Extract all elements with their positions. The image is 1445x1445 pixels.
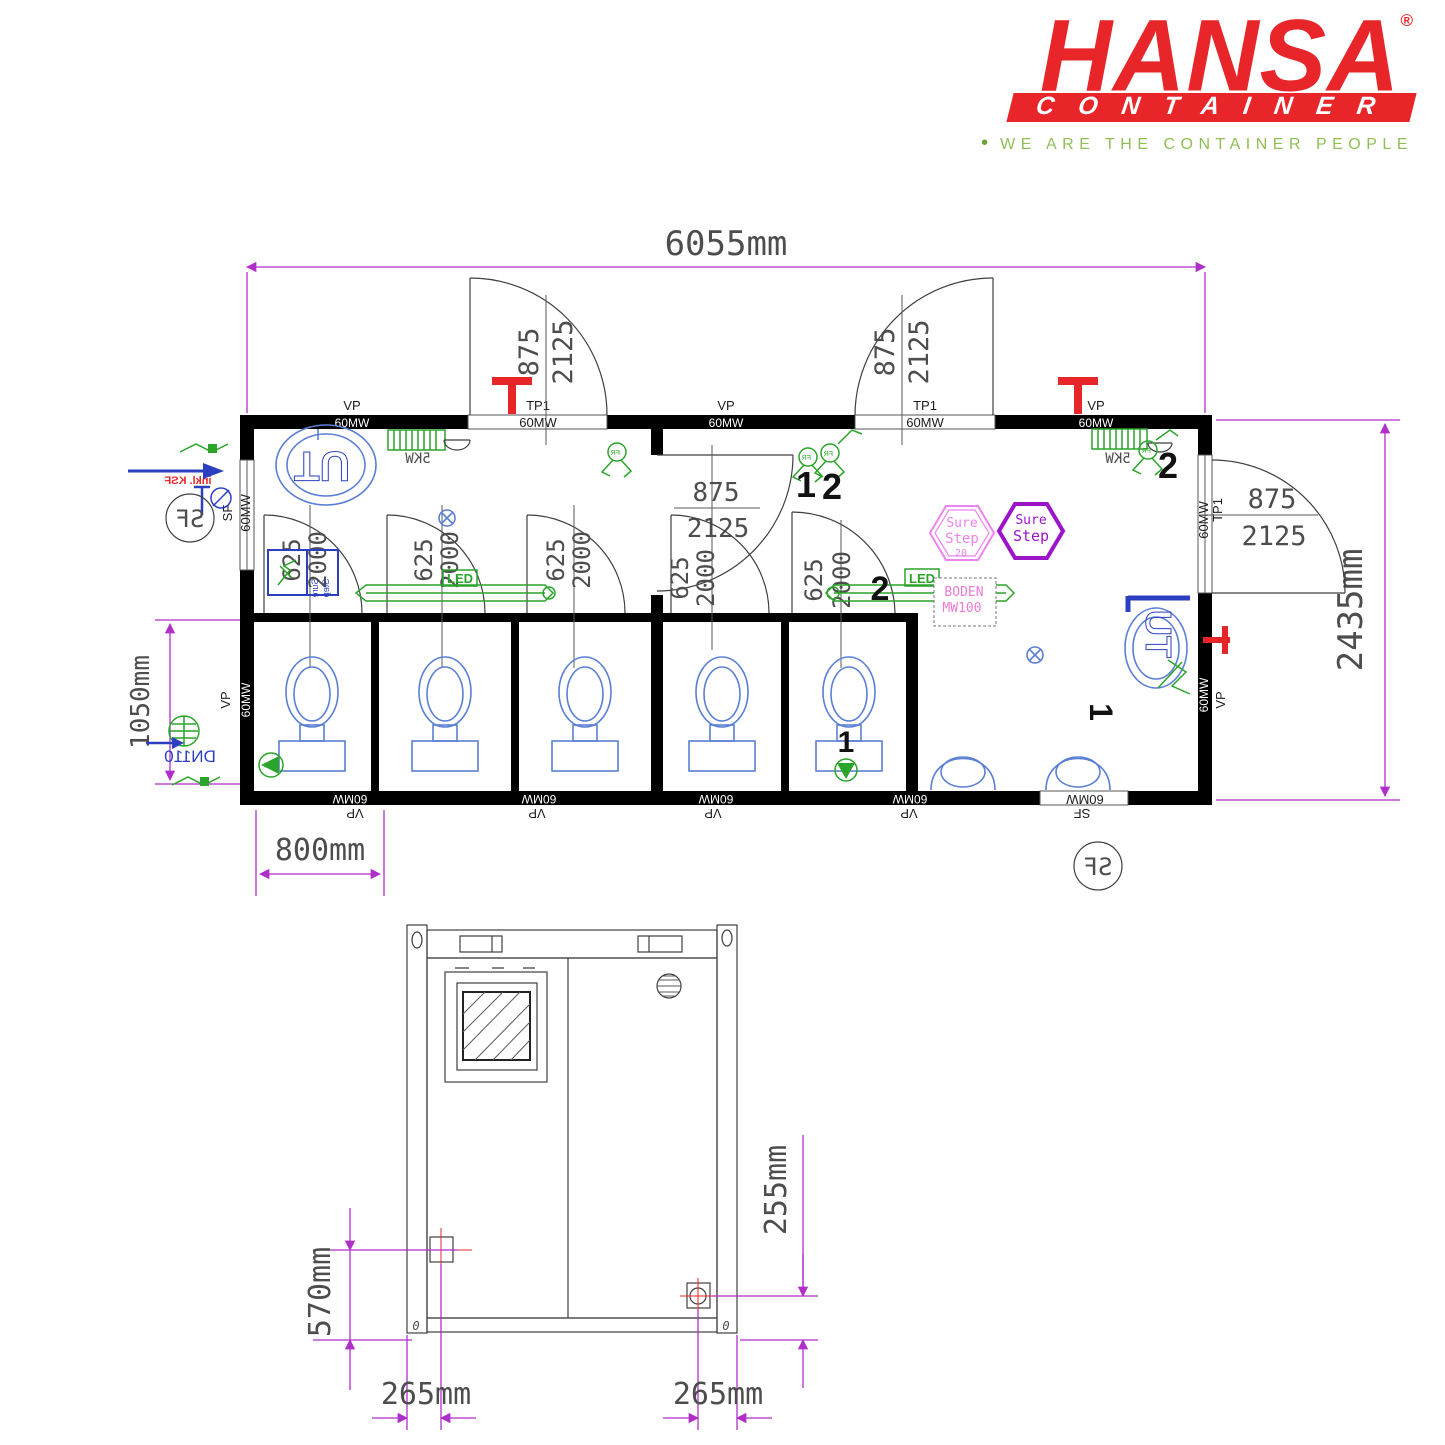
led-label: LED	[447, 571, 473, 586]
dim-265-left: 265mm	[381, 1377, 471, 1412]
wall-label-60mw: 60MW	[1065, 792, 1103, 807]
shower-label-sure: Sure	[310, 578, 320, 597]
mw100-label: MW100	[942, 601, 981, 616]
stall-door-width: 625	[278, 538, 306, 581]
wall-label-60mw: 60MW	[1197, 677, 1211, 712]
boden-mw100-block: BODEN MW100	[934, 578, 996, 626]
wall-label-60mw: 60MW	[519, 415, 557, 430]
technical-drawing-page: HANSA® CONTAINER • WE ARE THE CONTAINER …	[0, 0, 1445, 1445]
casting-hole: 0	[722, 1319, 729, 1333]
door-width: 875	[514, 328, 545, 377]
surestep-step: Step	[1013, 527, 1049, 545]
dim-height: 2435mm	[1331, 549, 1371, 672]
floor-drain: DN110	[146, 716, 216, 766]
sf-symbol: SF	[1074, 842, 1122, 890]
radiator-label: 5KW	[405, 451, 431, 467]
radiator: 5KW	[388, 430, 445, 467]
floor-plan: 6055mm 2435mm 1050mm 800mm	[126, 224, 1400, 896]
surestep-items: Sure Step 20 Sure Step BODEN MW100	[930, 504, 1063, 626]
pos-2: 2	[1158, 445, 1178, 486]
washbasin-label: UT	[1138, 610, 1179, 658]
wall-label-60mw: 60MW	[239, 682, 253, 717]
sprinkler-icon	[1027, 647, 1043, 663]
surestep-step: Step	[945, 531, 979, 547]
dim-stall: 800mm	[275, 833, 365, 868]
shower-label-step: Step	[321, 579, 331, 598]
wall-label-60mw: 60MW	[1196, 500, 1211, 538]
washbasin-left: UT	[276, 425, 376, 505]
wall-label-60mw: 60MW	[906, 415, 944, 430]
wall-label-vp: VP	[900, 806, 917, 821]
door-width: 875	[693, 478, 740, 508]
wall-label-60mw: 60MW	[892, 792, 927, 806]
wall-label-60mw: 60MW	[335, 416, 370, 430]
sf-symbol-label: SF	[176, 505, 205, 533]
surestep-hexagon: Sure Step	[999, 504, 1063, 558]
pos-2: 2	[871, 570, 890, 608]
wall-label-60mw: 60MW	[698, 792, 733, 806]
wall-label-vp: VP	[346, 806, 363, 821]
door-height: 2125	[548, 319, 579, 384]
wall-label-vp: VP	[343, 398, 360, 413]
stall-doors: 625 2000 625 2000 625 2000 625 2000 625 …	[264, 505, 895, 668]
dim-265-right: 265mm	[673, 1377, 763, 1412]
wall-label-tp1: TP1	[1210, 498, 1225, 522]
stall-door-width: 625	[800, 558, 828, 601]
dim-255: 255mm	[759, 1145, 794, 1235]
pos-1: 1	[1083, 703, 1119, 721]
wall-label-vp: VP	[704, 806, 721, 821]
pos-1: 1	[838, 726, 855, 759]
stall-door-width: 625	[666, 556, 694, 599]
wall-label-60mw: 60MW	[238, 493, 253, 531]
doors: 875 2125 875 2125 875 2125 875 2125	[470, 278, 1345, 650]
dim-inner: 1050mm	[126, 655, 156, 749]
door-width: 875	[870, 328, 901, 377]
door-height: 2125	[1241, 521, 1306, 552]
wall-label-sf: SF	[220, 505, 235, 522]
wall-label-vp: VP	[218, 691, 233, 708]
wall-label-vp: VP	[1213, 691, 1228, 708]
elevation-view: 0 0	[303, 925, 818, 1430]
wall-label-sf: SF	[1074, 806, 1091, 821]
window	[445, 968, 547, 1082]
stall-door-height: 2000	[568, 531, 596, 589]
stall-door-width: 625	[410, 538, 438, 581]
dim-570: 570mm	[303, 1247, 338, 1337]
surestep-sure: Sure	[1015, 513, 1046, 528]
wall-label-60mw: 60MW	[521, 792, 556, 806]
plan-walls	[240, 415, 1212, 805]
sf-symbol-label: SF	[1084, 853, 1113, 881]
door-height: 2125	[904, 319, 935, 384]
round-vent-icon	[657, 974, 681, 998]
sprinkler-icon	[439, 510, 455, 526]
stall-door-width: 625	[542, 538, 570, 581]
radiator-label: 5KW	[1105, 451, 1131, 467]
wall-label-vp: VP	[1087, 398, 1104, 413]
inlet-outlet	[426, 1228, 730, 1314]
washbasin-label: UT	[294, 443, 350, 490]
surestep-sure: Sure	[946, 516, 977, 531]
pos-2: 2	[822, 466, 842, 507]
vent-triangle	[835, 759, 857, 781]
washbasin-right: UT	[1125, 608, 1190, 694]
stall-door-height: 2000	[692, 549, 720, 607]
wall-label-tp1: TP1	[913, 398, 937, 413]
wall-label-60mw: 60MW	[1079, 416, 1114, 430]
wall-label-60mw: 60MW	[332, 792, 367, 806]
dim-width: 6055mm	[665, 224, 788, 264]
surestep-size: 20	[955, 548, 967, 559]
wall-label-vp: VP	[528, 806, 545, 821]
surestep-20-hexagon: Sure Step 20	[930, 506, 994, 560]
casting-hole: 0	[412, 1319, 419, 1333]
drain-label: DN110	[164, 747, 216, 766]
elevation-dimensions: 570mm 255mm 265mm 265mm	[303, 1135, 818, 1430]
door-width: 875	[1248, 484, 1297, 515]
wall-label-60mw: 60MW	[709, 416, 744, 430]
led-label: LED	[909, 571, 935, 586]
wall-label-vp: VP	[717, 398, 734, 413]
cad-drawing: FR 6055mm	[0, 0, 1445, 1445]
pos-1: 1	[796, 464, 816, 505]
led-strip: LED	[356, 570, 555, 601]
boden-label: BODEN	[944, 585, 983, 600]
